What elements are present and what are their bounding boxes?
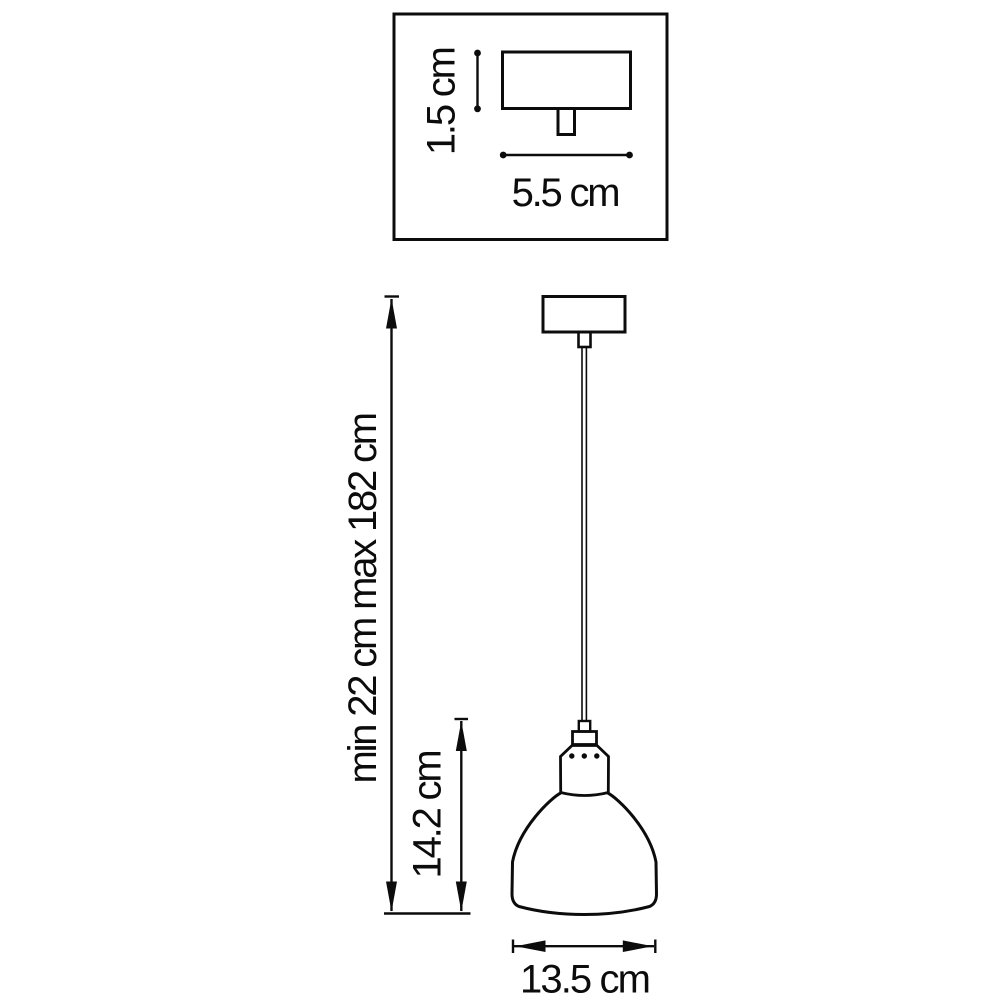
svg-text:14.2 cm: 14.2 cm bbox=[406, 752, 450, 879]
svg-text:13.5 cm: 13.5 cm bbox=[520, 957, 649, 1000]
svg-text:1.5 cm: 1.5 cm bbox=[420, 48, 464, 155]
svg-text:5.5 cm: 5.5 cm bbox=[512, 171, 619, 215]
svg-text:min 22 cm max 182 cm: min 22 cm max 182 cm bbox=[341, 414, 385, 783]
